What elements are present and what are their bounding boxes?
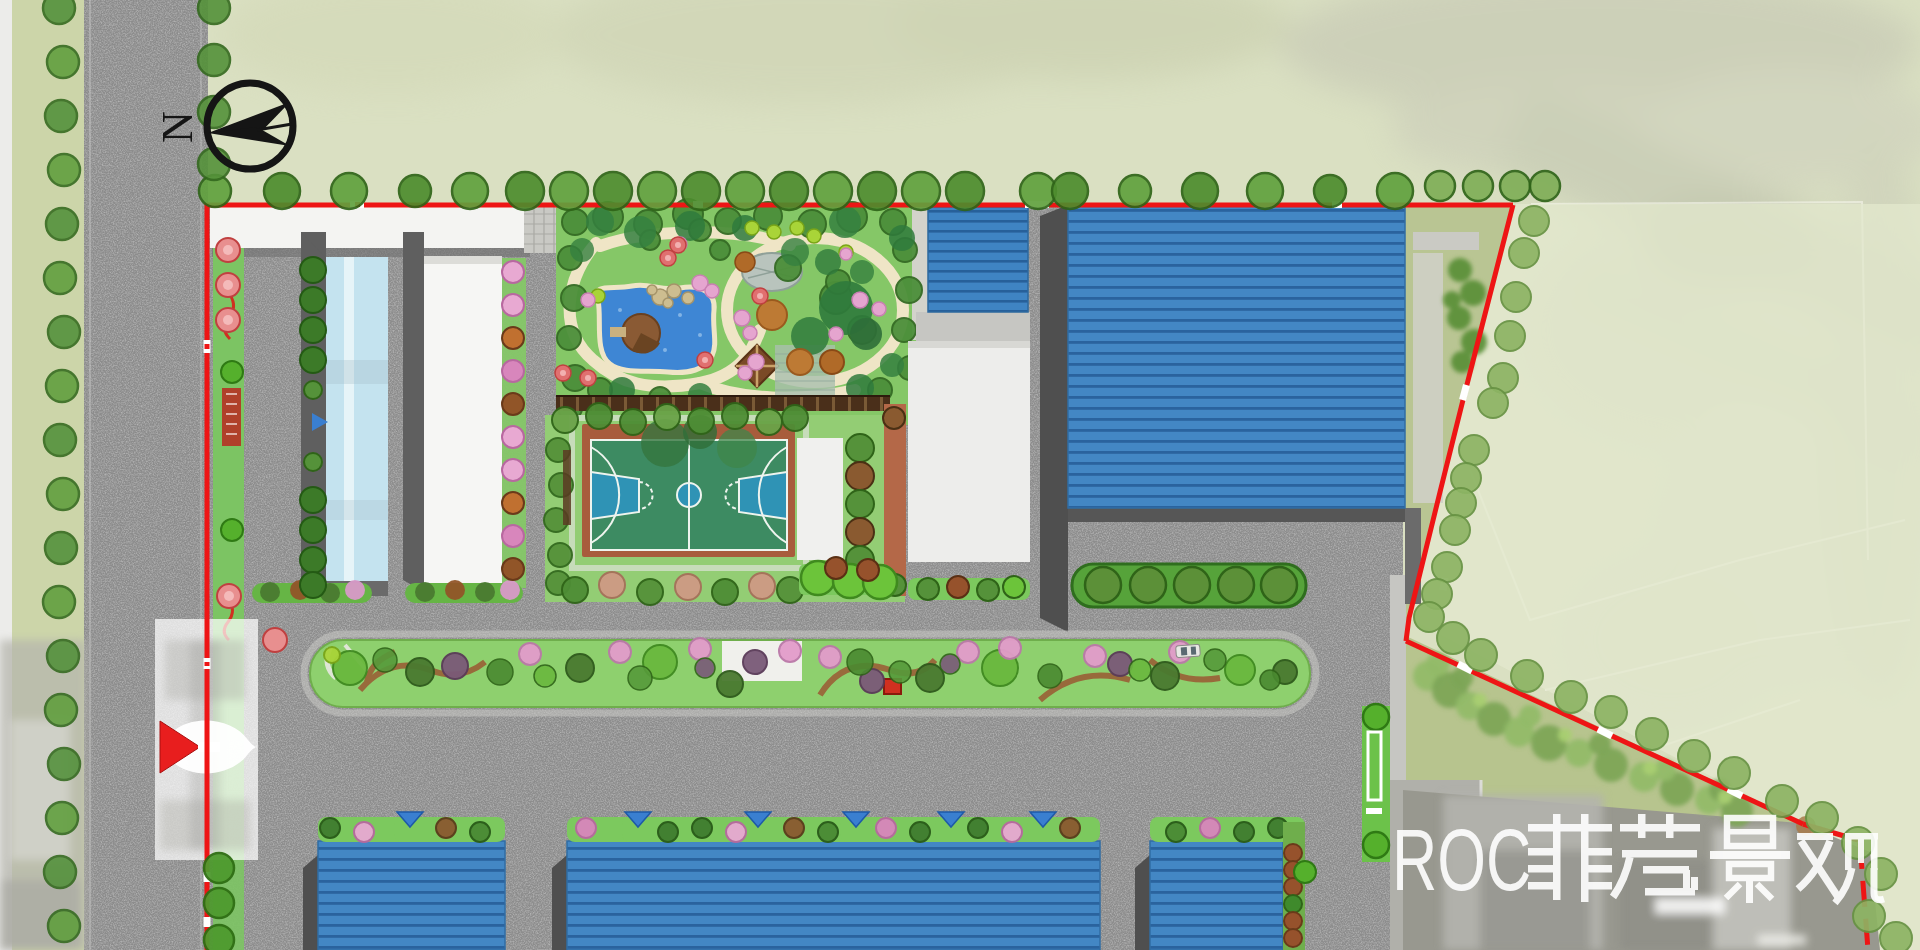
svg-text:N: N (153, 111, 202, 143)
svg-text:ROC: ROC (1392, 811, 1531, 909)
